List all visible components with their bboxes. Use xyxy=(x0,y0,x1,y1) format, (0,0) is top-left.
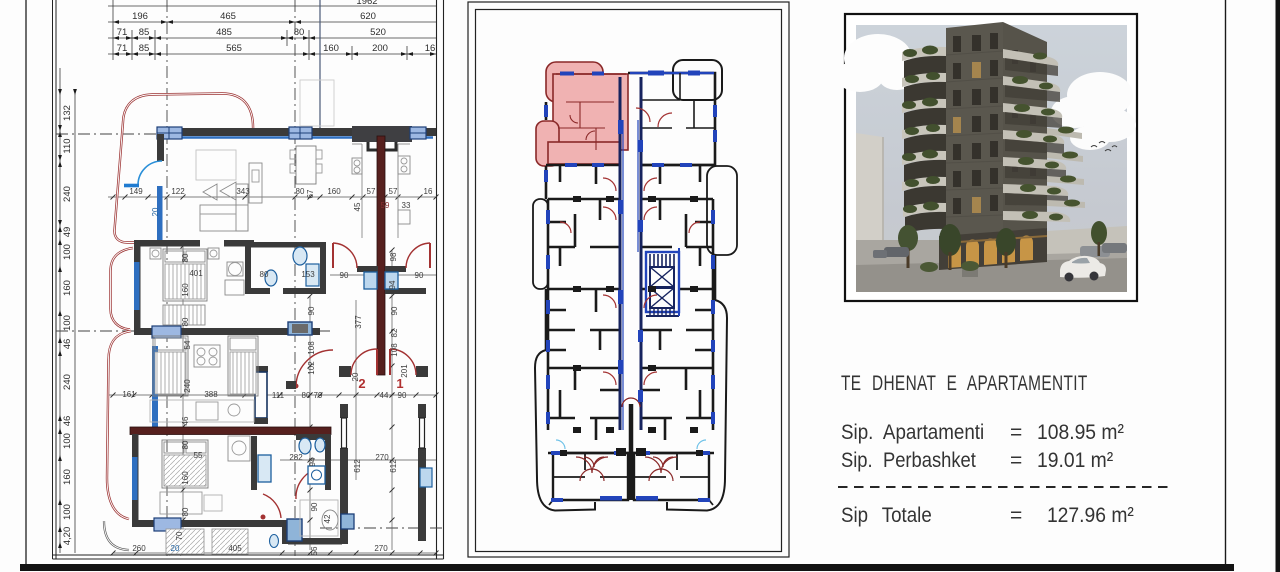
svg-text:46: 46 xyxy=(62,416,73,427)
svg-text:405: 405 xyxy=(228,544,242,553)
svg-text:343: 343 xyxy=(236,187,250,196)
svg-text:59: 59 xyxy=(381,201,390,210)
svg-text:160: 160 xyxy=(327,187,341,196)
svg-text:122: 122 xyxy=(171,187,185,196)
svg-text:4,20: 4,20 xyxy=(62,527,73,546)
svg-text:82: 82 xyxy=(390,328,399,337)
svg-text:108: 108 xyxy=(307,341,316,355)
svg-text:240: 240 xyxy=(62,374,73,390)
svg-text:98: 98 xyxy=(389,252,398,261)
svg-text:90: 90 xyxy=(398,391,407,400)
svg-text:612: 612 xyxy=(389,459,398,473)
svg-text:20: 20 xyxy=(171,544,180,553)
svg-text:Sip. Apartamenti: Sip. Apartamenti xyxy=(841,421,984,444)
svg-text:377: 377 xyxy=(354,315,363,329)
svg-text:19.01 m²: 19.01 m² xyxy=(1037,449,1113,472)
svg-text:20: 20 xyxy=(351,372,360,381)
svg-text:71: 71 xyxy=(117,27,128,38)
svg-text:485: 485 xyxy=(216,27,232,38)
svg-text:=: = xyxy=(1010,504,1022,527)
svg-text:149: 149 xyxy=(129,187,143,196)
svg-text:80: 80 xyxy=(181,507,190,516)
svg-text:46: 46 xyxy=(181,416,190,425)
svg-text:70: 70 xyxy=(175,531,184,540)
svg-text:160: 160 xyxy=(181,471,190,485)
svg-text:161: 161 xyxy=(122,390,136,399)
svg-text:153: 153 xyxy=(301,270,315,279)
svg-text:85: 85 xyxy=(139,27,150,38)
svg-text:201: 201 xyxy=(400,364,409,378)
svg-text:16: 16 xyxy=(425,43,436,54)
svg-text:TE DHENAT E APARTAMENTIT: TE DHENAT E APARTAMENTIT xyxy=(841,371,1088,395)
svg-text:270: 270 xyxy=(375,453,389,462)
svg-text:401: 401 xyxy=(189,269,203,278)
svg-text:90: 90 xyxy=(340,271,349,280)
svg-text:282: 282 xyxy=(289,453,303,462)
svg-text:90: 90 xyxy=(390,306,399,315)
svg-text:80: 80 xyxy=(260,270,269,279)
svg-text:79: 79 xyxy=(314,391,323,400)
svg-text:80: 80 xyxy=(181,253,190,262)
svg-text:85: 85 xyxy=(139,43,150,54)
svg-text:44: 44 xyxy=(380,391,389,400)
svg-text:100: 100 xyxy=(62,504,73,520)
svg-text:160: 160 xyxy=(181,283,190,297)
svg-text:612: 612 xyxy=(353,459,362,473)
svg-text:Sip Totale: Sip Totale xyxy=(841,504,932,527)
svg-text:90: 90 xyxy=(310,502,319,511)
svg-text:80: 80 xyxy=(296,187,305,196)
svg-text:100: 100 xyxy=(62,244,73,260)
svg-text:26: 26 xyxy=(418,450,427,459)
svg-text:54: 54 xyxy=(183,340,192,349)
svg-text:1962: 1962 xyxy=(356,0,377,7)
svg-text:71: 71 xyxy=(117,43,128,54)
svg-text:160: 160 xyxy=(62,280,73,296)
svg-text:160: 160 xyxy=(323,43,339,54)
svg-text:100: 100 xyxy=(62,315,73,331)
svg-text:127.96 m²: 127.96 m² xyxy=(1047,504,1134,527)
svg-text:240: 240 xyxy=(183,379,192,393)
svg-text:57: 57 xyxy=(389,187,398,196)
svg-text:80: 80 xyxy=(181,440,190,449)
svg-text:108: 108 xyxy=(390,343,399,357)
svg-text:45: 45 xyxy=(353,202,362,211)
svg-text:67: 67 xyxy=(306,189,315,198)
svg-text:=: = xyxy=(1010,449,1022,472)
svg-text:620: 620 xyxy=(360,11,376,22)
svg-text:90: 90 xyxy=(415,271,424,280)
svg-text:270: 270 xyxy=(374,544,388,553)
svg-text:388: 388 xyxy=(204,390,218,399)
svg-text:20: 20 xyxy=(151,207,160,216)
svg-text:94: 94 xyxy=(308,457,317,466)
svg-text:160: 160 xyxy=(62,469,73,485)
svg-text:110: 110 xyxy=(62,138,73,153)
svg-text:200: 200 xyxy=(372,43,388,54)
svg-text:465: 465 xyxy=(220,11,236,22)
svg-text:102: 102 xyxy=(307,361,316,375)
svg-text:108.95 m²: 108.95 m² xyxy=(1037,421,1124,444)
svg-text:16: 16 xyxy=(424,187,433,196)
svg-text:196: 196 xyxy=(132,11,148,22)
svg-text:55: 55 xyxy=(194,451,203,460)
svg-text:240: 240 xyxy=(62,186,73,202)
svg-text:33: 33 xyxy=(402,201,411,210)
svg-text:100: 100 xyxy=(62,433,73,449)
svg-text:42: 42 xyxy=(323,514,332,523)
svg-text:520: 520 xyxy=(370,27,386,38)
svg-text:80: 80 xyxy=(302,391,311,400)
svg-text:80: 80 xyxy=(181,317,190,326)
svg-text:56: 56 xyxy=(310,546,319,555)
svg-text:Sip. Perbashket: Sip. Perbashket xyxy=(841,449,976,472)
svg-text:94: 94 xyxy=(388,280,397,289)
svg-text:260: 260 xyxy=(132,544,146,553)
svg-text:565: 565 xyxy=(226,43,242,54)
svg-text:57: 57 xyxy=(367,187,376,196)
svg-text:132: 132 xyxy=(62,105,73,121)
svg-text:111: 111 xyxy=(272,391,285,400)
svg-text:49: 49 xyxy=(62,227,73,238)
svg-text:90: 90 xyxy=(307,306,316,315)
svg-text:46: 46 xyxy=(62,339,73,350)
svg-text:=: = xyxy=(1010,421,1022,444)
